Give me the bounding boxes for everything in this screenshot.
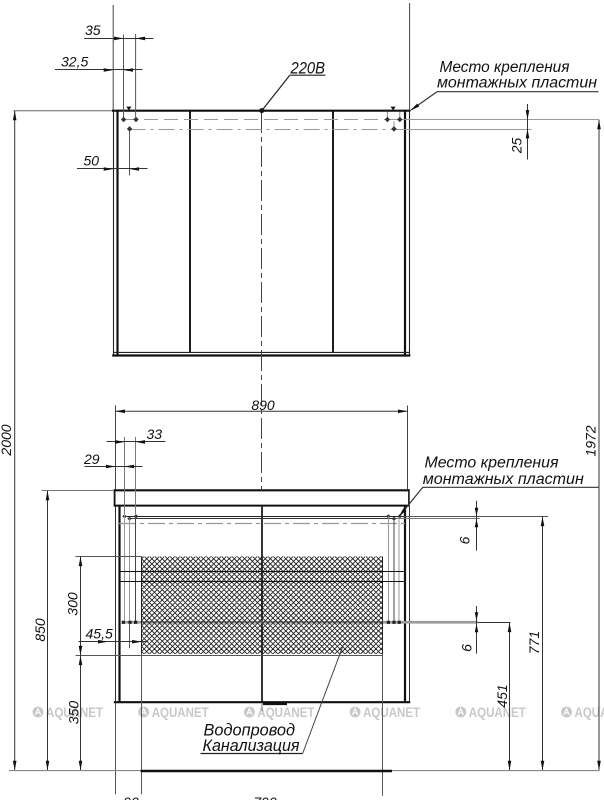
svg-text:AQUANET: AQUANET (257, 704, 314, 720)
svg-text:90: 90 (123, 794, 139, 800)
svg-text:AQUANET: AQUANET (363, 704, 420, 720)
svg-text:32,5: 32,5 (61, 54, 88, 70)
svg-text:AQUANET: AQUANET (152, 704, 209, 720)
svg-text:AQUANET: AQUANET (575, 704, 604, 720)
svg-text:2000: 2000 (0, 424, 14, 456)
svg-text:6: 6 (459, 644, 475, 652)
svg-text:451: 451 (494, 684, 510, 707)
svg-text:790: 790 (253, 794, 277, 800)
svg-text:1972: 1972 (583, 425, 599, 456)
svg-text:771: 771 (526, 631, 542, 654)
svg-text:6: 6 (456, 536, 472, 544)
svg-text:300: 300 (64, 592, 80, 616)
svg-text:монтажных пластин: монтажных пластин (437, 75, 597, 92)
svg-text:25: 25 (508, 138, 524, 155)
svg-text:350: 350 (66, 701, 82, 725)
svg-text:50: 50 (84, 153, 100, 169)
svg-text:45,5: 45,5 (86, 626, 113, 642)
svg-text:монтажных пластин: монтажных пластин (423, 471, 584, 488)
svg-text:29: 29 (83, 451, 100, 467)
svg-text:890: 890 (251, 397, 275, 413)
svg-text:Место крепления: Место крепления (440, 59, 570, 76)
svg-text:850: 850 (32, 618, 48, 642)
svg-text:33: 33 (147, 426, 163, 442)
svg-text:220В: 220В (290, 59, 325, 78)
svg-text:Место крепления: Место крепления (425, 454, 559, 471)
svg-text:35: 35 (85, 22, 101, 38)
svg-text:Канализация: Канализация (203, 736, 300, 755)
